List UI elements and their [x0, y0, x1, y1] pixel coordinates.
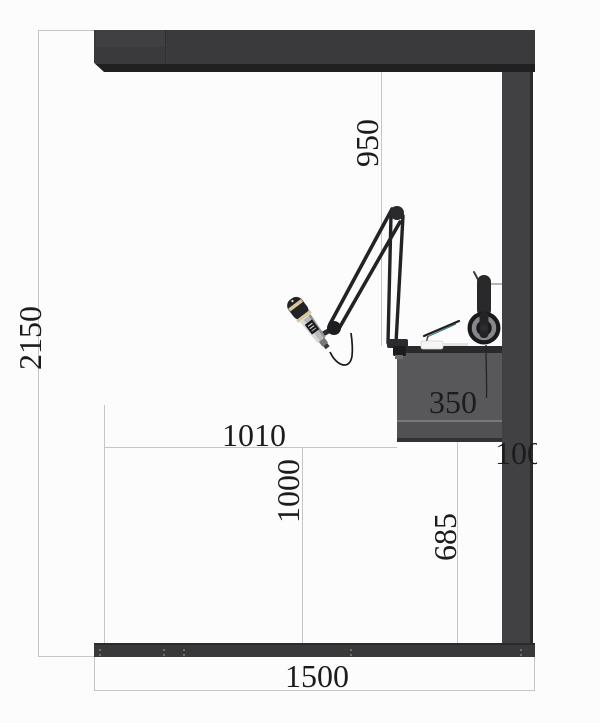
mic-connector [323, 343, 329, 349]
top-beam-highlight [96, 30, 165, 47]
mic-body-shade [308, 314, 327, 338]
screw-dot [350, 649, 352, 651]
right-column [502, 72, 533, 643]
mic-band-lower [296, 310, 312, 323]
floor-beam [94, 643, 535, 657]
ear-cup-outer [468, 312, 501, 345]
screw-dot [520, 649, 522, 651]
mic-head-dot [291, 300, 294, 303]
mic-cable [330, 333, 352, 365]
mic-clip [323, 328, 334, 334]
hook-wire [474, 272, 483, 289]
dim-2150-tick-top [38, 30, 94, 31]
mic-label-text-line [308, 323, 313, 327]
mic-head [284, 294, 311, 323]
ear-cup-center [480, 324, 488, 332]
boom-lower-bar-2 [396, 216, 403, 343]
headband [477, 275, 491, 317]
dim-label-350: 350 [429, 386, 477, 418]
dim-label-1010: 1010 [222, 419, 286, 451]
screw-dot [163, 649, 165, 651]
boom-arm [323, 206, 408, 359]
dim-2150-tick-bottom [38, 656, 94, 657]
screw-dot [163, 654, 165, 656]
screw-dot [99, 649, 101, 651]
dim-950-line [381, 72, 382, 346]
laptop-lid [424, 321, 459, 336]
mic-tail [319, 338, 328, 347]
dim-label-1000: 1000 [272, 459, 304, 523]
boom-top-pivot [390, 206, 404, 220]
screw-dot [350, 654, 352, 656]
boom-lower-bar-1 [388, 215, 391, 343]
screw-dot [99, 654, 101, 656]
mic-body [300, 314, 327, 343]
riser-support [426, 336, 428, 343]
boom-upper-bar-2 [337, 222, 400, 332]
top-beam [94, 30, 535, 72]
screw-dot [520, 654, 522, 656]
floor-beam-top-edge [94, 643, 535, 645]
ear-cup-ring [474, 318, 494, 338]
top-beam-bottom-edge [94, 64, 535, 72]
laptop-on-riser [421, 321, 468, 349]
left-wall-line [104, 405, 105, 643]
laptop-screen-accent [427, 324, 456, 337]
mic-label-text-line [309, 325, 314, 329]
ear-cup-yoke [480, 312, 489, 338]
dim-label-2150: 2150 [14, 306, 46, 370]
screw-dot [183, 654, 185, 656]
dim-label-685: 685 [429, 513, 461, 561]
dim-label-950: 950 [351, 119, 383, 167]
boom-elbow-joint [327, 321, 341, 335]
mic-band-upper [288, 299, 303, 311]
mic-label-text-line [311, 327, 316, 331]
mic-body-highlight [300, 319, 320, 343]
column-right-edge [530, 72, 533, 643]
dim-label-1500: 1500 [285, 660, 349, 692]
dim-label-100: 100 [495, 438, 537, 468]
elevation-drawing: 2150 950 1010 1000 685 350 100 1500 [0, 0, 600, 723]
dim-1500-right-ext [534, 657, 535, 690]
boom-upper-bar-1 [330, 209, 392, 324]
screw-dot [183, 649, 185, 651]
microphone [284, 294, 334, 353]
dim-1500-left-ext [94, 657, 95, 690]
mic-label [305, 320, 319, 335]
